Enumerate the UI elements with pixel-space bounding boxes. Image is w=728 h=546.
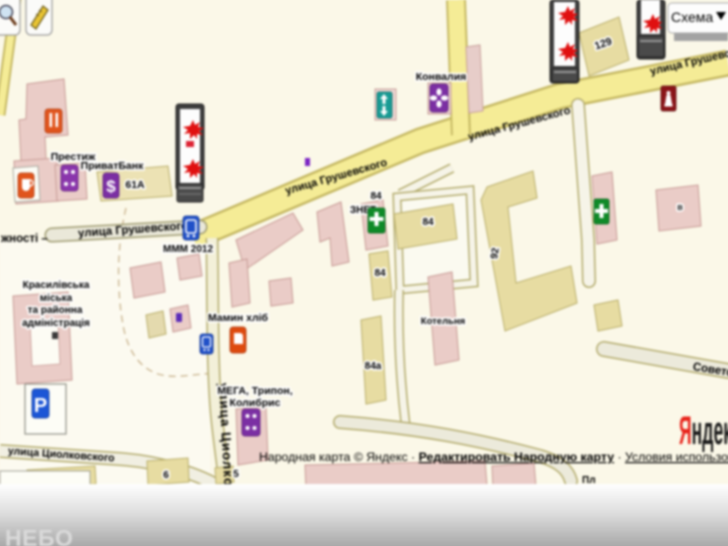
- svg-text:6: 6: [163, 470, 169, 481]
- svg-text:Красилівська: Красилівська: [23, 280, 90, 291]
- svg-text:міська: міська: [40, 293, 73, 304]
- svg-text:Народная карта © Яндекс · Реда: Народная карта © Яндекс · Редактировать …: [259, 450, 728, 464]
- svg-text:жності –: жності –: [0, 233, 48, 245]
- svg-text:Колибрис: Колибрис: [230, 397, 281, 409]
- svg-text:Яндекс: Яндекс: [679, 408, 728, 453]
- svg-text:84: 84: [370, 191, 382, 202]
- svg-text:адміністрація: адміністрація: [22, 318, 90, 329]
- svg-text:ПриватБанк: ПриватБанк: [81, 160, 144, 172]
- svg-text:84: 84: [422, 217, 434, 228]
- svg-text:Мамин хліб: Мамин хліб: [208, 312, 269, 324]
- svg-text:61А: 61А: [125, 179, 145, 191]
- svg-text:Схема: Схема: [671, 9, 713, 25]
- svg-text:84: 84: [374, 268, 386, 279]
- svg-text:Котельня: Котельня: [421, 316, 465, 327]
- svg-text:МЕГА, Трипон,: МЕГА, Трипон,: [217, 385, 292, 397]
- svg-text:МММ 2012: МММ 2012: [163, 244, 213, 255]
- svg-text:та районна: та районна: [28, 305, 83, 316]
- svg-text:5: 5: [233, 469, 239, 480]
- svg-text:НЕБО: НЕБО: [5, 525, 73, 546]
- svg-text:$: $: [106, 177, 116, 196]
- svg-text:P: P: [34, 395, 47, 417]
- svg-text:Конвалия: Конвалия: [416, 71, 467, 83]
- svg-text:в: в: [677, 202, 683, 212]
- svg-text:84а: 84а: [365, 361, 382, 372]
